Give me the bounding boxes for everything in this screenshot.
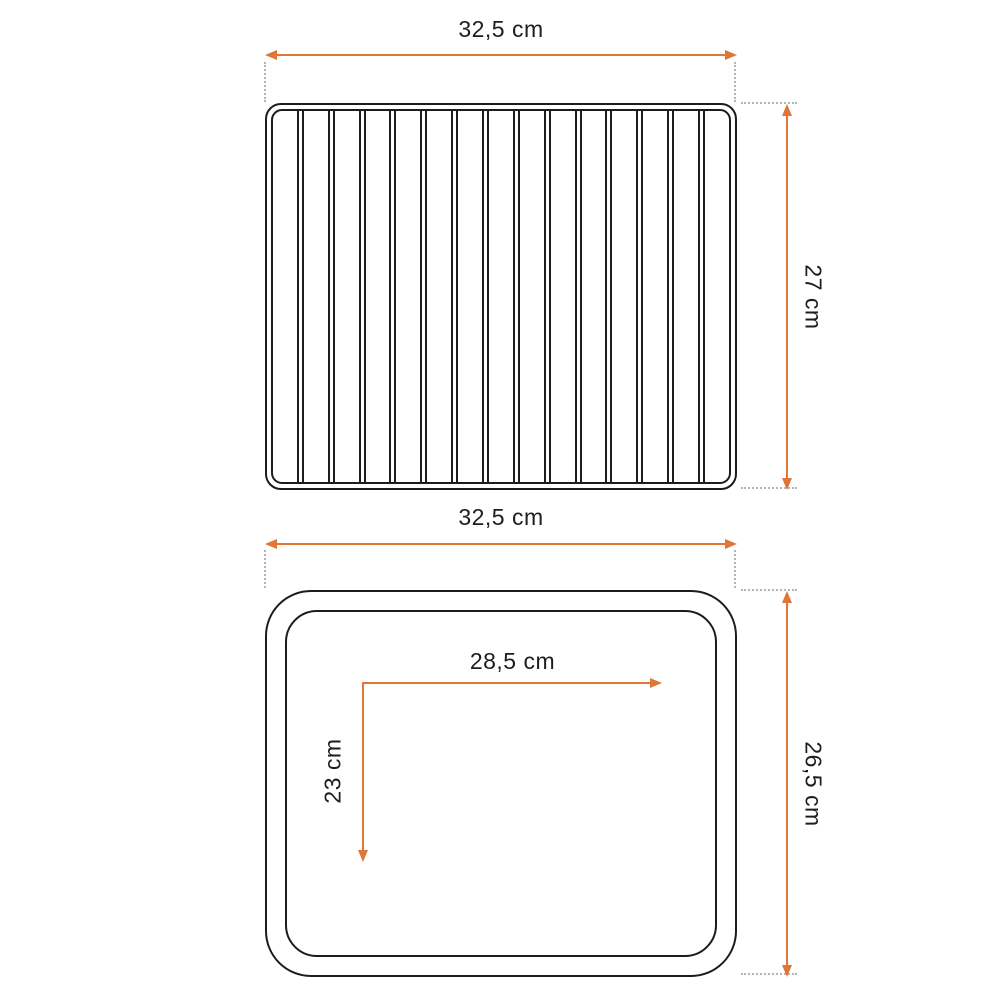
guide-line [264,550,266,588]
guide-line [734,550,736,588]
rack-width-label: 32,5 cm [265,16,737,43]
arrow-line [363,682,650,684]
rack-width-arrow [265,49,737,61]
product-dimension-diagram: 32,5 cm 27 cm 32,5 cm [0,0,1000,1000]
arrowhead-down-icon [782,478,792,490]
rack-bar [513,111,520,482]
arrowhead-right-icon [725,50,737,60]
rack-bar [698,111,705,482]
arrow-line [786,114,788,480]
tray-height-arrow [781,591,793,977]
tray-inner-height-arrow [357,682,369,862]
arrow-line [362,682,364,850]
rack-inner-frame [271,109,731,484]
tray-inner-width-label: 28,5 cm [363,648,662,675]
rack-bar [636,111,643,482]
rack-bar [544,111,551,482]
rack-bar [451,111,458,482]
rack-bar [328,111,335,482]
rack-bar [667,111,674,482]
tray-inner-height-label: 23 cm [320,738,347,803]
rack-bar [297,111,304,482]
arrow-line [275,54,727,56]
guide-line [734,62,736,102]
arrowhead-down-icon [358,850,368,862]
arrowhead-right-icon [725,539,737,549]
guide-line [264,62,266,102]
rack-bar [389,111,396,482]
arrowhead-right-icon [650,678,662,688]
tray-height-label: 26,5 cm [800,741,827,826]
rack-outline [265,103,737,490]
rack-bar [605,111,612,482]
rack-bar [359,111,366,482]
arrowhead-down-icon [782,965,792,977]
arrow-line [786,601,788,967]
rack-bar [420,111,427,482]
tray-width-arrow [265,538,737,550]
rack-bar [575,111,582,482]
arrow-line [275,543,727,545]
rack-height-label: 27 cm [800,264,827,329]
tray-width-label: 32,5 cm [265,504,737,531]
rack-height-arrow [781,104,793,490]
tray-inner-width-arrow [363,677,662,689]
rack-bar [482,111,489,482]
